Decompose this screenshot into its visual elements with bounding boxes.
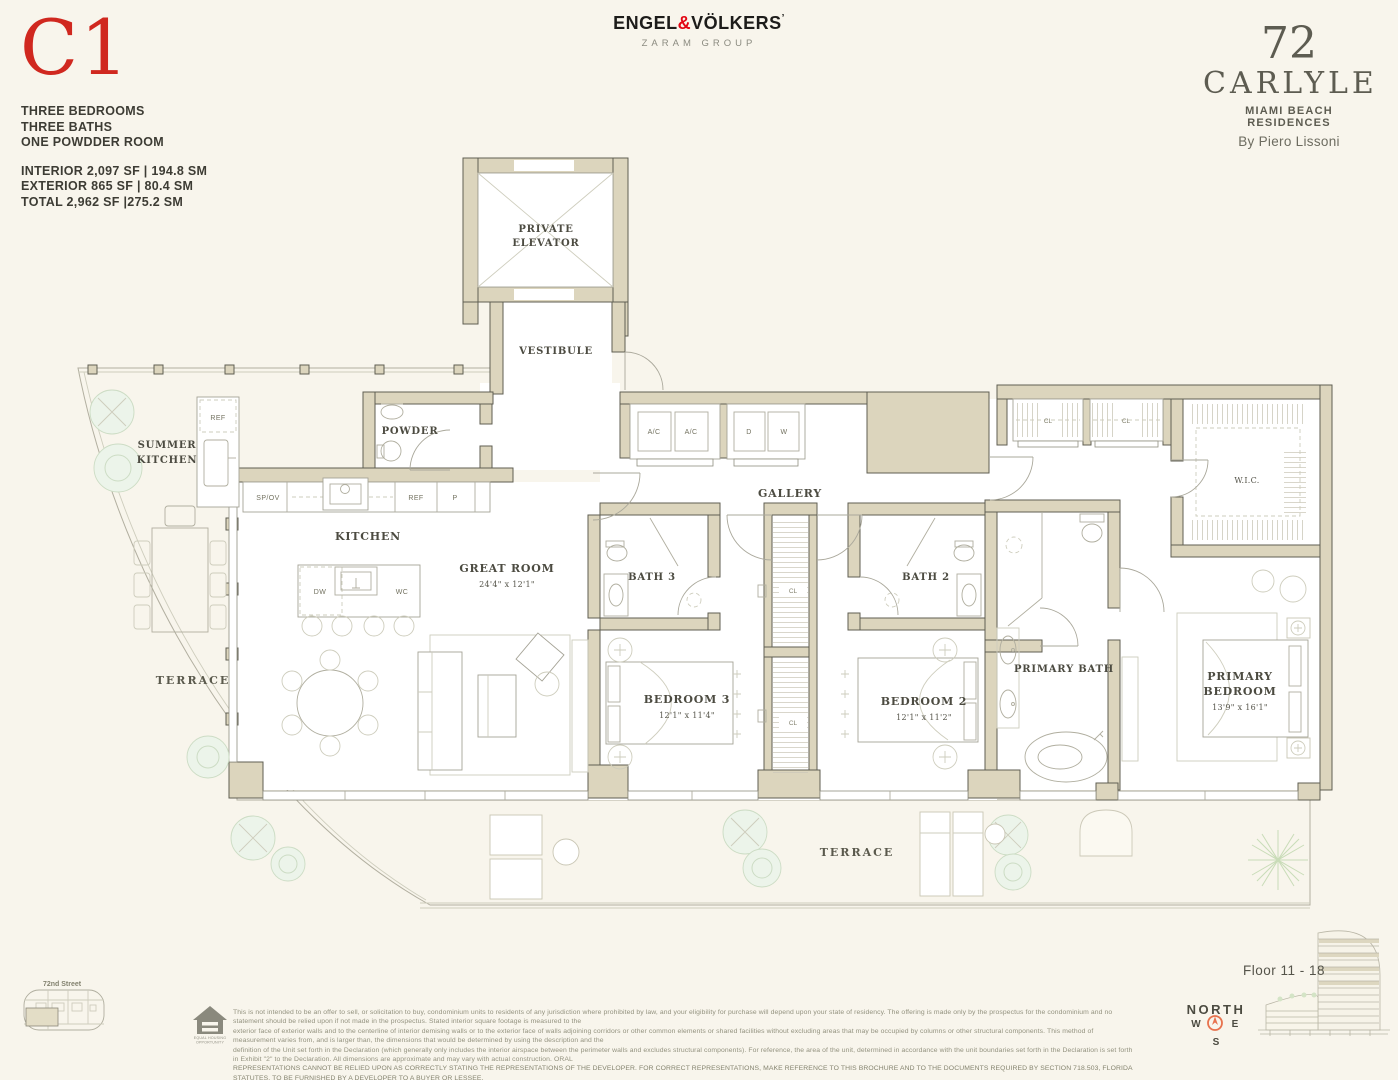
- summer-kitchen: REF: [134, 397, 239, 632]
- fixture-label-wc: WC: [396, 589, 408, 596]
- compass-east-label: E: [1232, 1019, 1239, 1030]
- compass-needle-icon: [1212, 1017, 1218, 1026]
- room-label-terrace-left: TERRACE: [156, 674, 231, 687]
- room-label-primary-bath: PRIMARY BATH: [1014, 664, 1114, 675]
- fixture-label-cl: CL: [789, 588, 798, 595]
- room-label-primary-bedroom: BEDROOM: [1203, 685, 1276, 698]
- equal-housing-label: OPPORTUNITY: [196, 1041, 224, 1045]
- room-label-powder: POWDER: [382, 426, 439, 437]
- room-label-kitchen: KITCHEN: [335, 530, 401, 543]
- room-label-private-elevator: PRIVATE: [518, 224, 573, 235]
- room-label-wic: W.I.C.: [1234, 476, 1259, 485]
- fixture-label-ac: A/C: [648, 429, 661, 436]
- compass-south-label: S: [1213, 1037, 1220, 1048]
- floor-range-label: Floor 11 - 18: [1243, 963, 1325, 978]
- equal-housing-icon: EQUAL HOUSING OPPORTUNITY: [193, 1006, 227, 1045]
- fixture-label-ref: REF: [408, 495, 423, 502]
- room-label-bedroom3: BEDROOM 3: [644, 693, 730, 706]
- disclaimer-line: exterior face of exterior walls and to t…: [233, 1027, 1133, 1046]
- equal-housing-label: EQUAL HOUSING: [194, 1036, 226, 1040]
- room-label-vestibule: VESTIBULE: [518, 346, 593, 357]
- fixture-label-cl: CL: [1122, 418, 1131, 425]
- fixture-label-summer-ref: REF: [210, 415, 225, 422]
- fixture-label-spov: SP/OV: [256, 495, 279, 502]
- room-label-bath3: BATH 3: [628, 572, 676, 583]
- fixture-label-cl: CL: [789, 720, 798, 727]
- room-label-great-room: GREAT ROOM: [459, 562, 554, 575]
- fixture-label-pantry: P: [452, 495, 457, 502]
- room-label-primary-bedroom: PRIMARY: [1207, 670, 1273, 683]
- disclaimer-line: This is not intended to be an offer to s…: [233, 1008, 1133, 1027]
- fixture-label-dryer: D: [746, 429, 751, 436]
- fixture-label-dw: DW: [314, 589, 326, 596]
- room-dims-bedroom3: 12'1" x 11'4": [659, 711, 715, 720]
- fixture-label-ac: A/C: [685, 429, 698, 436]
- room-label-summer-kitchen: SUMMER: [138, 440, 197, 451]
- legal-disclaimer: This is not intended to be an offer to s…: [233, 1008, 1133, 1080]
- room-label-gallery: GALLERY: [758, 487, 822, 500]
- room-dims-bedroom2: 12'1" x 11'2": [896, 713, 952, 722]
- keyplan: 72nd Street: [24, 981, 104, 1030]
- keyplan-street-label: 72nd Street: [43, 981, 82, 988]
- room-label-bath2: BATH 2: [902, 572, 950, 583]
- floor-plan: PRIVATE ELEVATOR VESTIBULE: [0, 0, 1398, 1080]
- room-label-private-elevator: ELEVATOR: [512, 238, 579, 249]
- compass: NORTH W E S: [1187, 1002, 1246, 1048]
- disclaimer-line: definition of the Unit set forth in the …: [233, 1046, 1133, 1065]
- room-dims-primary-bedroom: 13'9" x 16'1": [1212, 703, 1268, 712]
- compass-west-label: W: [1191, 1019, 1201, 1030]
- compass-north-label: NORTH: [1187, 1002, 1246, 1017]
- room-label-terrace-bottom: TERRACE: [820, 846, 895, 859]
- fixture-label-cl: CL: [1044, 418, 1053, 425]
- room-label-bedroom2: BEDROOM 2: [881, 695, 967, 708]
- brochure-page: C1 THREE BEDROOMS THREE BATHS ONE POWDDE…: [0, 0, 1398, 1080]
- utility-closets: A/C A/C D W: [630, 404, 805, 466]
- room-dims-great-room: 24'4" x 12'1": [479, 580, 535, 589]
- building-illustration: [1258, 931, 1390, 1036]
- fixture-label-washer: W: [780, 429, 787, 436]
- disclaimer-line: REPRESENTATIONS CANNOT BE RELIED UPON AS…: [233, 1064, 1133, 1080]
- room-label-summer-kitchen: KITCHEN: [137, 455, 198, 466]
